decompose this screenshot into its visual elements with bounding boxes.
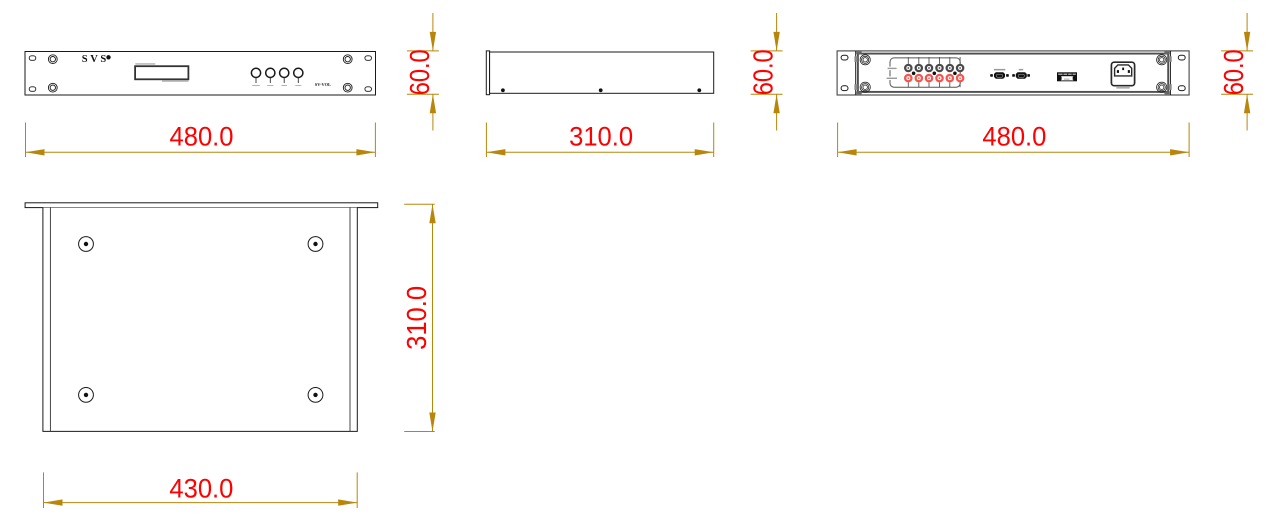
- svg-text:SV-VOL: SV-VOL: [315, 82, 331, 87]
- svg-text:480.0: 480.0: [170, 122, 234, 152]
- svg-text:60.0: 60.0: [1218, 49, 1249, 95]
- svg-text:SVS: SVS: [82, 54, 109, 65]
- svg-text:430.0: 430.0: [169, 473, 233, 503]
- svg-text:310.0: 310.0: [569, 122, 633, 152]
- svg-text:310.0: 310.0: [401, 286, 432, 350]
- svg-text:480.0: 480.0: [982, 122, 1046, 152]
- svg-text:60.0: 60.0: [404, 49, 435, 95]
- svg-text:60.0: 60.0: [748, 49, 779, 95]
